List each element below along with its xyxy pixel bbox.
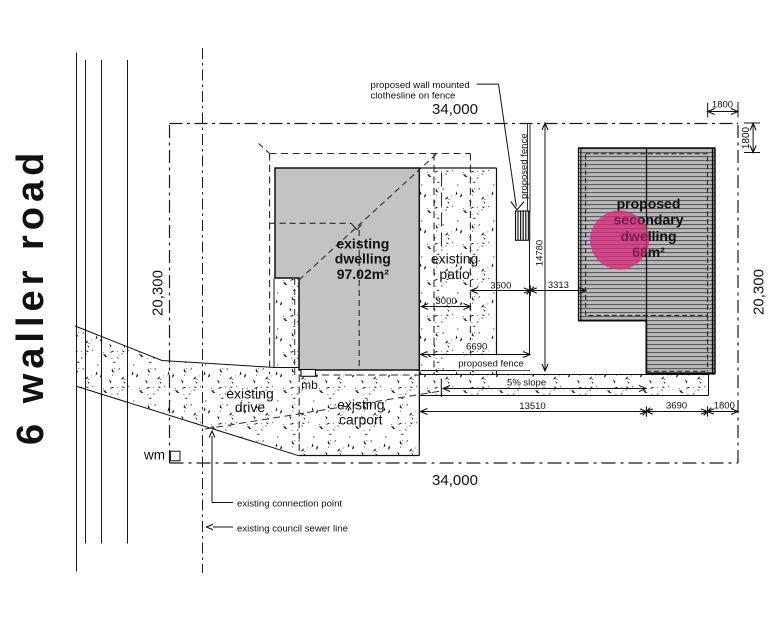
svg-text:3690: 3690 [666, 400, 687, 411]
svg-text:existing council sewer line: existing council sewer line [237, 523, 348, 534]
svg-text:dwelling: dwelling [621, 228, 677, 244]
svg-text:20,300: 20,300 [150, 270, 167, 316]
svg-text:6690: 6690 [466, 342, 487, 353]
svg-text:dwelling: dwelling [335, 251, 391, 267]
svg-text:secondary: secondary [613, 212, 683, 228]
svg-text:proposed: proposed [617, 196, 681, 212]
svg-text:carport: carport [339, 412, 383, 428]
svg-text:68m²: 68m² [632, 244, 665, 260]
svg-text:1800: 1800 [714, 400, 735, 411]
svg-text:3600: 3600 [490, 280, 511, 291]
svg-text:13510: 13510 [519, 401, 545, 412]
svg-text:existing: existing [337, 397, 384, 413]
svg-text:3313: 3313 [548, 280, 569, 291]
svg-text:patio: patio [439, 266, 470, 282]
svg-text:1800: 1800 [741, 126, 752, 149]
svg-text:wm: wm [143, 448, 165, 463]
svg-text:97.02m²: 97.02m² [337, 266, 389, 282]
svg-text:34,000: 34,000 [432, 101, 478, 118]
svg-text:existing: existing [431, 250, 478, 266]
svg-text:1800: 1800 [712, 100, 733, 111]
svg-text:3000: 3000 [436, 296, 457, 307]
svg-text:proposed fence: proposed fence [519, 134, 530, 200]
svg-text:5% slope: 5% slope [507, 378, 546, 389]
svg-text:proposed wall mounted: proposed wall mounted [371, 80, 470, 91]
svg-text:drive: drive [235, 399, 266, 415]
svg-text:mb: mb [301, 378, 318, 392]
svg-text:14780: 14780 [535, 240, 546, 266]
svg-text:20,300: 20,300 [751, 269, 768, 315]
svg-text:existing connection point: existing connection point [237, 498, 342, 509]
svg-text:proposed fence: proposed fence [458, 359, 524, 370]
svg-text:6 waller road: 6 waller road [10, 148, 52, 445]
svg-text:34,000: 34,000 [432, 472, 478, 489]
svg-text:existing: existing [336, 235, 389, 251]
svg-text:clothesline on fence: clothesline on fence [371, 91, 456, 102]
